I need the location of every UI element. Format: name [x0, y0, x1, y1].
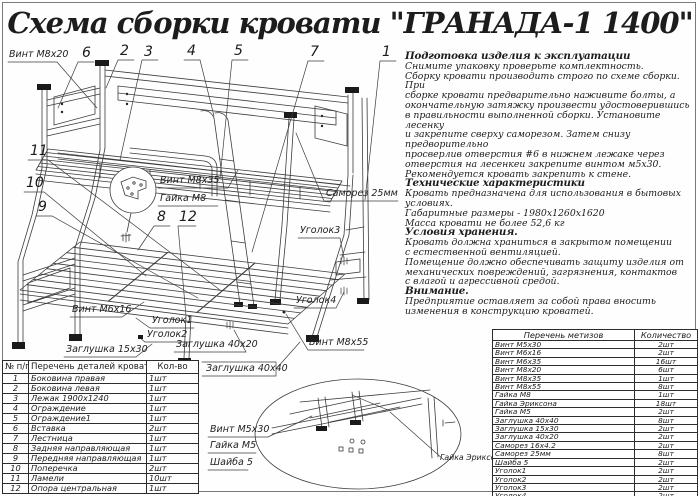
- hardware-table-row: Уголок2 2шт: [493, 475, 698, 483]
- ladder-group: [201, 111, 257, 309]
- hardware-qty: 2шт: [635, 341, 698, 349]
- hardware-qty: 2шт: [635, 475, 698, 483]
- parts-table-row: 3 Лежак 1900х1240 1шт: [3, 394, 199, 404]
- parts-header-name: Перечень деталей кровати: [29, 361, 147, 374]
- part-number: 5: [3, 414, 29, 424]
- parts-table-row: 4 Ограждение 1шт: [3, 404, 199, 414]
- hardware-table-row: Заглушка 15х30 2шт: [493, 425, 698, 433]
- hardware-qty: 8шт: [635, 416, 698, 424]
- part-number: 12: [3, 484, 29, 494]
- label-gaika-m5: Гайка М5: [210, 441, 256, 451]
- parts-table-row: 11 Ламели 10шт: [3, 474, 199, 484]
- part-number: 4: [3, 404, 29, 414]
- hardware-table-row: Шайба 5 2шт: [493, 458, 698, 466]
- hardware-table-row: Винт М6х16 2шт: [493, 349, 698, 357]
- hardware-table-row: Гайка М5 2шт: [493, 408, 698, 416]
- part-number: 10: [3, 464, 29, 474]
- part-number: 8: [3, 444, 29, 454]
- part-name: Ограждение: [29, 404, 147, 414]
- instruction-line: в правильности выполненной сборки. Устан…: [405, 111, 697, 131]
- part-number: 11: [3, 474, 29, 484]
- part-qty: 1шт: [147, 444, 199, 454]
- part-name: Ограждение1: [29, 414, 147, 424]
- hardware-table-row: Винт М6х35 16шт: [493, 357, 698, 365]
- callout-11: 11: [30, 144, 48, 158]
- callout-3: 3: [144, 45, 153, 59]
- callout-9: 9: [38, 200, 47, 214]
- hardware-table: Перечень метизов Количество Винт М5х30 2…: [492, 329, 698, 496]
- part-number: 7: [3, 434, 29, 444]
- parts-table-row: 1 Боковина правая 1шт: [3, 374, 199, 384]
- hardware-qty: 16шт: [635, 357, 698, 365]
- callout-4: 4: [187, 44, 196, 58]
- part-qty: 2шт: [147, 424, 199, 434]
- hardware-qty: 8шт: [635, 383, 698, 391]
- hardware-table-row: Заглушка 40х40 8шт: [493, 416, 698, 424]
- detail-circle-inset: [110, 167, 156, 242]
- part-qty: 10шт: [147, 474, 199, 484]
- hardware-qty: 2шт: [635, 433, 698, 441]
- part-number: 3: [3, 394, 29, 404]
- part-qty: 1шт: [147, 394, 199, 404]
- label-samorez-25mm: Саморез 25мм: [326, 189, 398, 199]
- label-ugolok4: Уголок4: [296, 296, 336, 306]
- label-ugolok1: Уголок1: [152, 316, 192, 326]
- hardware-qty: 2шт: [635, 467, 698, 475]
- hardware-qty: 6шт: [635, 366, 698, 374]
- instruction-line: Сборку кровати производить строго по схе…: [405, 72, 697, 92]
- label-vint-m6x16: Винт М6х16: [72, 305, 131, 315]
- part-number: 2: [3, 384, 29, 394]
- parts-table-row: 7 Лестница 1шт: [3, 434, 199, 444]
- hardware-name: Винт М5х30: [493, 341, 635, 349]
- hardware-name: Уголок1: [493, 467, 635, 475]
- parts-table-row: 12 Опора центральная 1шт: [3, 484, 199, 494]
- part-name: Опора центральная: [29, 484, 147, 494]
- parts-header-qty: Кол-во: [147, 361, 199, 374]
- hardware-table-row: Винт М5х30 2шт: [493, 341, 698, 349]
- hardware-name: Саморез 25мм: [493, 450, 635, 458]
- label-ugolok3: Уголок3: [300, 226, 340, 236]
- hardware-table-row: Винт М8х20 6шт: [493, 366, 698, 374]
- hardware-table-row: Заглушка 40х20 2шт: [493, 433, 698, 441]
- parts-table-row: 9 Передняя направляющая 1шт: [3, 454, 199, 464]
- instructions-block: Подготовка изделия к эксплуатацииСнимите…: [405, 52, 697, 317]
- label-zaglushka-40x40: Заглушка 40х40: [206, 364, 288, 374]
- label-vint-m8x20: Винт М8х20: [9, 50, 68, 60]
- parts-table-row: 5 Ограждение1 1шт: [3, 414, 199, 424]
- label-zaglushka-40x20: Заглушка 40х20: [176, 340, 258, 350]
- part-qty: 1шт: [147, 384, 199, 394]
- hardware-name: Винт М6х35: [493, 357, 635, 365]
- callout-5: 5: [234, 44, 243, 58]
- hardware-name: Гайка Эриксона: [493, 399, 635, 407]
- part-name: Боковина правая: [29, 374, 147, 384]
- hardware-table-row: Гайка М8 1шт: [493, 391, 698, 399]
- hardware-name: Уголок3: [493, 483, 635, 491]
- part-number: 1: [3, 374, 29, 384]
- part-name: Боковина левая: [29, 384, 147, 394]
- callout-12: 12: [179, 210, 197, 224]
- hardware-name: Саморез 16х4.2: [493, 441, 635, 449]
- parts-table-row: 10 Поперечка 2шт: [3, 464, 199, 474]
- hardware-name: Гайка М5: [493, 408, 635, 416]
- hardware-name: Винт М8х35: [493, 374, 635, 382]
- hardware-qty: 2шт: [635, 458, 698, 466]
- hardware-qty: 2шт: [635, 483, 698, 491]
- part-name: Лестница: [29, 434, 147, 444]
- label-shaiba-5: Шайба 5: [210, 458, 253, 468]
- hardware-table-header-row: Перечень метизов Количество: [493, 330, 698, 341]
- label-vint-m8x35: Винт М8х35: [160, 176, 219, 186]
- label-vint-m5x30: Винт М5х30: [210, 425, 269, 435]
- hardware-qty: 1шт: [635, 391, 698, 399]
- hardware-name: Заглушка 40х40: [493, 416, 635, 424]
- part-qty: 2шт: [147, 464, 199, 474]
- part-qty: 1шт: [147, 414, 199, 424]
- hardware-table-row: Уголок1 2шт: [493, 467, 698, 475]
- parts-table-row: 8 Задняя направляющая 1шт: [3, 444, 199, 454]
- part-number: 6: [3, 424, 29, 434]
- hardware-name: Винт М8х20: [493, 366, 635, 374]
- hardware-qty: 2шт: [635, 349, 698, 357]
- hardware-name: Гайка М8: [493, 391, 635, 399]
- hardware-table-row: Уголок4 2шт: [493, 492, 698, 496]
- parts-table-row: 2 Боковина левая 1шт: [3, 384, 199, 394]
- hardware-table-row: Уголок3 2шт: [493, 483, 698, 491]
- hardware-qty: 2шт: [635, 441, 698, 449]
- part-name: Вставка: [29, 424, 147, 434]
- callout-6: 6: [82, 46, 91, 60]
- label-gaika-m8: Гайка М8: [160, 194, 206, 204]
- part-name: Ламели: [29, 474, 147, 484]
- detail-ellipse-inset: [255, 379, 461, 489]
- part-name: Поперечка: [29, 464, 147, 474]
- part-qty: 1шт: [147, 434, 199, 444]
- hardware-header-name: Перечень метизов: [493, 330, 635, 341]
- callout-10: 10: [26, 176, 44, 190]
- hardware-table-row: Саморез 25мм 8шт: [493, 450, 698, 458]
- parts-header-num: № п/п: [3, 361, 29, 374]
- hardware-table-row: Саморез 16х4.2 2шт: [493, 441, 698, 449]
- hardware-qty: 2шт: [635, 408, 698, 416]
- part-name: Лежак 1900х1240: [29, 394, 147, 404]
- hardware-table-row: Винт М8х35 1шт: [493, 374, 698, 382]
- hardware-name: Уголок2: [493, 475, 635, 483]
- instruction-sheet: Схема сборки кровати "ГРАНАДА-1 1400": [0, 0, 700, 496]
- upper-bunk-group: [36, 60, 359, 212]
- hardware-table-row: Гайка Эриксона 18шт: [493, 399, 698, 407]
- callout-8: 8: [157, 210, 166, 224]
- hardware-table-row: Винт М8х55 8шт: [493, 383, 698, 391]
- part-qty: 1шт: [147, 404, 199, 414]
- callout-7: 7: [310, 45, 319, 59]
- hardware-name: Заглушка 15х30: [493, 425, 635, 433]
- parts-table: № п/п Перечень деталей кровати Кол-во 1 …: [2, 360, 199, 494]
- parts-table-row: 6 Вставка 2шт: [3, 424, 199, 434]
- label-vint-m8x55: Винт М8х55: [309, 338, 368, 348]
- part-qty: 1шт: [147, 484, 199, 494]
- hardware-qty: 1шт: [635, 374, 698, 382]
- hardware-qty: 2шт: [635, 492, 698, 496]
- hardware-name: Винт М6х16: [493, 349, 635, 357]
- instruction-line: и закрепите сверху саморезом. Затем сниз…: [405, 130, 697, 150]
- hardware-qty: 8шт: [635, 450, 698, 458]
- part-name: Задняя направляющая: [29, 444, 147, 454]
- hardware-name: Заглушка 40х20: [493, 433, 635, 441]
- parts-table-header-row: № п/п Перечень деталей кровати Кол-во: [3, 361, 199, 374]
- hardware-name: Шайба 5: [493, 458, 635, 466]
- hardware-qty: 2шт: [635, 425, 698, 433]
- instruction-line: изменения в конструкцию кроватей.: [405, 307, 697, 317]
- callout-1: 1: [382, 45, 391, 59]
- part-number: 9: [3, 454, 29, 464]
- part-qty: 1шт: [147, 454, 199, 464]
- hardware-header-qty: Количество: [635, 330, 698, 341]
- label-zaglushka-15x30: Заглушка 15х30: [66, 345, 148, 355]
- part-qty: 1шт: [147, 374, 199, 384]
- part-name: Передняя направляющая: [29, 454, 147, 464]
- hardware-qty: 18шт: [635, 399, 698, 407]
- callout-2: 2: [120, 44, 129, 58]
- hardware-name: Уголок4: [493, 492, 635, 496]
- hardware-name: Винт М8х55: [493, 383, 635, 391]
